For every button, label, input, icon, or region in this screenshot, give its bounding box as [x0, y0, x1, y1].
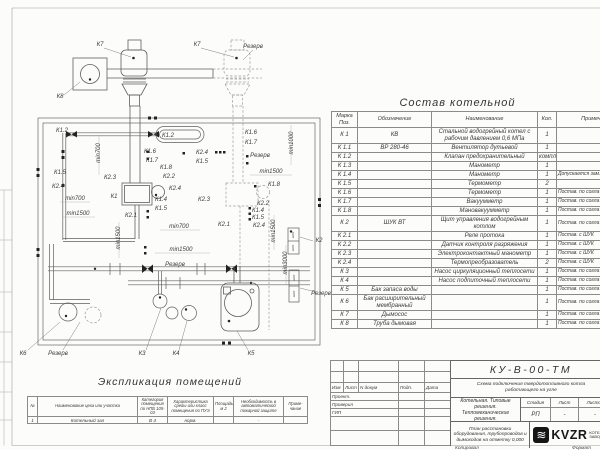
sostav-table-title: Состав котельной — [350, 97, 565, 109]
table-cell — [358, 232, 432, 241]
table-cell: К 7 — [332, 311, 358, 320]
plan-label: min700 — [169, 224, 189, 230]
table-cell: 1 — [538, 144, 557, 153]
copied-label: Копировал — [455, 446, 479, 450]
table-cell: Манометр — [432, 171, 538, 180]
signature-cell — [399, 393, 425, 401]
sostav-table-body: К 1КВСтальной водогрейный котел с рабочи… — [332, 128, 600, 329]
table-cell: Щит управления водогрейным котлом — [432, 216, 538, 232]
signature-cell: Лист — [344, 383, 359, 393]
plan-label: min700 — [65, 196, 85, 202]
table-cell: Постав. по согла — [557, 189, 600, 198]
table-row: К 3Насос циркуляционный теплосети1Постав… — [332, 268, 600, 277]
table-cell: К 1 — [332, 128, 358, 144]
signature-cell — [344, 372, 359, 383]
plan-label: min700 — [96, 143, 102, 163]
plan-label: Резерв — [250, 153, 270, 159]
drawing-sheet: К7К7РезервК8К1.2min700К1.2К1.6К1.7К2.4К1… — [0, 0, 600, 450]
table-cell: Допускается зам. поз. К 2.3 — [557, 171, 600, 180]
plan-label: К1.6 — [144, 149, 156, 155]
table-row: К 2ШУК ВТЩит управления водогрейным котл… — [332, 216, 600, 232]
table-cell: 1 — [538, 241, 557, 250]
table-row: К 1КВСтальной водогрейный котел с рабочи… — [332, 128, 600, 144]
table-cell: Датчик контроля разряжения — [432, 241, 538, 250]
plan-label: К1.5 — [54, 170, 66, 176]
signature-cell — [359, 361, 399, 372]
plan-label: К2.4 — [52, 184, 64, 190]
plan-label: К2.4 — [196, 150, 208, 156]
signature-cell — [344, 361, 359, 372]
table-row: К 1.7Вакуумметр1Постав. по согла — [332, 198, 600, 207]
table-cell — [358, 207, 432, 216]
table-cell: К 3 — [332, 268, 358, 277]
smoke-exhauster-k7 — [121, 50, 147, 76]
table-cell: 1 — [538, 128, 557, 144]
plan-label: К1 — [111, 194, 118, 200]
table-cell — [358, 171, 432, 180]
format-label: Формат — [572, 446, 591, 450]
table-cell: Мановакуумметр — [432, 207, 538, 216]
plan-label: К2.2 — [257, 201, 269, 207]
kvzr-logo-icon: ≋ — [533, 427, 549, 443]
table-cell: Электроконтактный манометр — [432, 250, 538, 259]
column-header: Наименование — [432, 112, 538, 128]
tank-k5 — [221, 266, 259, 331]
plan-label: К2 — [316, 238, 323, 244]
table-cell — [358, 259, 432, 268]
table-row: К 2.4Термопреобразователь2Постав. с ШУК — [332, 259, 600, 268]
plan-label: К1.7 — [146, 158, 158, 164]
plan-label: К1.7 — [245, 140, 257, 146]
sheet-title: План расстановки оборудования, трубопров… — [451, 422, 530, 448]
signature-cell — [399, 431, 425, 446]
table-row: К 1.6Термометр1Постав. по согла — [332, 189, 600, 198]
signature-row — [331, 431, 451, 446]
table-cell: Постав. с ШУК — [557, 250, 600, 259]
table-cell: 1 — [538, 198, 557, 207]
table-cell: Постав. по согла — [557, 207, 600, 216]
plan-label: ШУК — [291, 275, 297, 281]
plan-label: min1500 — [116, 226, 122, 249]
table-cell: 2 — [538, 180, 557, 189]
sostav-table: Марка Поз.ОбозначениеНаименованиеКол.При… — [331, 111, 600, 329]
titleblock-signature-body: ИзмЛистN докумПодп.ДатаПроект.ПроверилГИ… — [331, 361, 451, 446]
table-row: К 1.2Клапан предохранительныйкомпл. — [332, 153, 600, 162]
plan-label: min1500 — [169, 247, 192, 253]
explication-title: Экспликация помещений — [80, 376, 260, 388]
plan-label: ШУК — [290, 245, 296, 251]
signature-cell — [399, 401, 425, 409]
plan-label: К7 — [194, 42, 201, 48]
signature-cell: Изм — [331, 383, 344, 393]
table-cell: К 2.1 — [332, 232, 358, 241]
signature-cell — [399, 372, 425, 383]
stage-value-stadia: РП — [521, 408, 551, 421]
plan-label: Резерв — [311, 291, 331, 297]
table-cell: Насос подпиточный теплосети — [432, 277, 538, 286]
table-cell: К 2 — [332, 216, 358, 232]
table-cell — [214, 417, 234, 424]
table-cell: Клапан предохранительный — [432, 153, 538, 162]
table-cell: Насос циркуляционный теплосети — [432, 268, 538, 277]
table-cell: Постав. с ШУК — [557, 241, 600, 250]
kvzr-logo-caption: КОТЕЛЬНЫ ЗАВОД Р — [589, 431, 600, 440]
column-header: Наименование цеха или участка — [38, 397, 138, 417]
table-cell: 1 — [538, 250, 557, 259]
table-cell — [432, 295, 538, 311]
signature-cell — [331, 372, 344, 383]
leader-lines — [28, 308, 248, 350]
plan-label: К2.1 — [125, 213, 137, 219]
table-row: К 6Бак расширительный мембранный1Постав.… — [332, 295, 600, 311]
table-cell: Постав. по согла — [557, 320, 600, 329]
signature-cell — [425, 401, 451, 409]
table-row: К 8Труба дымовая1Постав. по согла — [332, 320, 600, 329]
table-row: К 2.2Датчик контроля разряжения1Постав. … — [332, 241, 600, 250]
plan-label: К4 — [173, 351, 180, 357]
plan-label: min1500 — [66, 211, 89, 217]
table-cell: Труба дымовая — [358, 320, 432, 329]
table-cell — [358, 162, 432, 171]
table-cell: В 4 — [138, 417, 168, 424]
column-header: Категория помещения по НПБ 105-03 — [138, 397, 168, 417]
stage-values: РП - - — [521, 408, 600, 421]
table-cell: - — [234, 417, 284, 424]
table-cell: Стальной водогрейный котел с рабочим дав… — [432, 128, 538, 144]
table-cell — [557, 144, 600, 153]
column-header: Необходимость в автоматической пожарной … — [234, 397, 284, 417]
table-cell — [432, 320, 538, 329]
signature-cell: Проверил — [331, 401, 399, 409]
document-subtitle: Схема подключения твердотопливного котла… — [451, 379, 600, 398]
table-cell: КВ — [358, 128, 432, 144]
table-cell: Вентилятор дутьевой — [432, 144, 538, 153]
table-cell: Постав. по согла — [557, 198, 600, 207]
table-cell — [432, 286, 538, 295]
table-cell: Термометр — [432, 180, 538, 189]
table-row: К 5Бак запаса воды1Постав. по согла — [332, 286, 600, 295]
table-cell: Бак запаса воды — [358, 286, 432, 295]
stage-value-listov: - — [579, 408, 600, 421]
signature-cell — [331, 431, 399, 446]
table-cell — [358, 268, 432, 277]
table-cell: К 5 — [332, 286, 358, 295]
plan-label: ШУК — [291, 291, 297, 297]
table-cell: компл. — [538, 153, 557, 162]
signature-row: Проект. — [331, 393, 451, 401]
project-object: Котельная. Типовые решения. Тепломеханич… — [451, 398, 521, 421]
column-header: Характеристика среды или класс помещения… — [168, 397, 214, 417]
explication-table-head: №Наименование цеха или участкаКатегория … — [28, 397, 308, 417]
column-header: Площадь, м 2 — [214, 397, 234, 417]
signature-row: ИзмЛистN докумПодп.Дата — [331, 383, 451, 393]
table-cell: 1 — [538, 295, 557, 311]
titleblock-signature-grid: ИзмЛистN докумПодп.ДатаПроект.ПроверилГИ… — [330, 360, 451, 446]
plan-label: min3000 — [283, 251, 289, 274]
table-cell: Котельный зал — [38, 417, 138, 424]
table-cell: К 4 — [332, 277, 358, 286]
chimney-base-k8 — [73, 58, 107, 90]
plan-label: К2.4 — [169, 186, 181, 192]
plan-label: К8 — [57, 94, 64, 100]
table-cell: Постав. с ШУК — [557, 259, 600, 268]
plan-label: К6 — [20, 351, 27, 357]
signature-cell — [331, 417, 399, 431]
table-cell: Манометр — [432, 162, 538, 171]
table-cell: К 1.5 — [332, 180, 358, 189]
plan-label: К1.5 — [155, 206, 167, 212]
plan-label: К1.6 — [245, 130, 257, 136]
chimney-assembly-reserve — [201, 40, 262, 183]
signature-cell: Дата — [425, 383, 451, 393]
column-header: Обозначение — [358, 112, 432, 128]
table-row: К 1.4Манометр1Допускается зам. поз. К 2.… — [332, 171, 600, 180]
table-cell: К 6 — [332, 295, 358, 311]
table-cell: ШУК ВТ — [358, 216, 432, 232]
table-cell: Постав. с ШУК — [557, 232, 600, 241]
table-cell: Постав. по согла — [557, 216, 600, 232]
plan-label: К2.1 — [218, 222, 230, 228]
table-cell — [358, 277, 432, 286]
plan-label: К2.3 — [198, 197, 210, 203]
table-cell — [358, 180, 432, 189]
plan-label: Резерв — [48, 351, 68, 357]
table-cell: К 1.6 — [332, 189, 358, 198]
column-header: Примечание — [557, 112, 600, 128]
column-header: Кол. — [538, 112, 557, 128]
table-row: К 2.3Электроконтактный манометр1Постав. … — [332, 250, 600, 259]
signature-row: Проверил — [331, 401, 451, 409]
signature-cell: Проект. — [331, 393, 399, 401]
table-cell: Постав. по согла — [557, 277, 600, 286]
wall-ticks — [37, 117, 322, 345]
table-cell — [358, 250, 432, 259]
plan-label: min1000 — [289, 131, 295, 154]
table-cell — [358, 198, 432, 207]
plan-label: К1.2 — [162, 133, 174, 139]
table-row: К 1.8Мановакуумметр1Постав. по согла — [332, 207, 600, 216]
signature-cell — [399, 361, 425, 372]
stage-header-stadia: Стадия — [521, 398, 551, 407]
table-cell: 1 — [538, 268, 557, 277]
signature-cell — [425, 393, 451, 401]
column-header: Приме- чание — [284, 397, 308, 417]
table-cell — [557, 180, 600, 189]
plan-label: К2.4 — [253, 223, 265, 229]
signature-row — [331, 417, 451, 431]
plan-label: К1.4 — [252, 208, 264, 214]
table-cell: К 1.4 — [332, 171, 358, 180]
titleblock-main: КУ-В-00-ТМ Схема подключения твердотопли… — [450, 360, 600, 446]
plan-label: К2.3 — [104, 175, 116, 181]
signature-cell — [425, 417, 451, 431]
table-cell — [358, 241, 432, 250]
plan-label: К1.8 — [268, 182, 280, 188]
table-row: К 1.1ВР 280-46Вентилятор дутьевой1 — [332, 144, 600, 153]
table-row: 1Котельный залВ 4норм.- — [28, 417, 308, 424]
plan-label: К1.8 — [160, 165, 172, 171]
signature-cell — [425, 431, 451, 446]
signature-cell — [425, 361, 451, 372]
table-row: К 2.1Реле протока1Постав. с ШУК — [332, 232, 600, 241]
table-cell: 1 — [538, 232, 557, 241]
signature-row — [331, 361, 451, 372]
table-row: К 1.3Манометр1 — [332, 162, 600, 171]
table-cell: 1 — [538, 320, 557, 329]
signature-cell: N докум — [359, 383, 399, 393]
table-cell: 1 — [538, 162, 557, 171]
plan-label: К2.2 — [163, 174, 175, 180]
plan-label: К3 — [139, 351, 146, 357]
company-logo: ≋ KVZR КОТЕЛЬНЫ ЗАВОД Р — [530, 422, 600, 448]
table-cell: 1 — [28, 417, 38, 424]
table-cell: К 2.2 — [332, 241, 358, 250]
signature-cell — [425, 372, 451, 383]
chimney-assembly — [64, 40, 213, 183]
table-cell: Термопреобразователь — [432, 259, 538, 268]
explication-table: №Наименование цеха или участкаКатегория … — [27, 396, 308, 424]
plan-label: К1.2 — [56, 128, 68, 134]
table-cell: Постав. по согла — [557, 311, 600, 320]
table-cell: 1 — [538, 277, 557, 286]
signature-cell: Подп. — [399, 383, 425, 393]
plan-label: min1500 — [259, 169, 282, 175]
table-cell: 1 — [538, 207, 557, 216]
signature-cell — [359, 372, 399, 383]
table-cell: ВР 280-46 — [358, 144, 432, 153]
table-cell — [358, 189, 432, 198]
plan-label: Резерв — [243, 44, 263, 50]
table-cell — [358, 153, 432, 162]
plan-label: Резерв — [165, 262, 185, 268]
table-cell: Вакуумметр — [432, 198, 538, 207]
signature-cell: ГИП — [331, 409, 399, 417]
table-cell: норм. — [168, 417, 214, 424]
kvzr-caption-line2: ЗАВОД Р — [589, 435, 600, 439]
signature-cell — [331, 361, 344, 372]
table-cell — [557, 162, 600, 171]
signature-row — [331, 372, 451, 383]
plan-label: К7 — [97, 42, 104, 48]
table-cell: 1 — [538, 286, 557, 295]
signature-row: ГИП — [331, 409, 451, 417]
table-cell: 1 — [538, 216, 557, 232]
plan-label: К1.5 — [196, 159, 208, 165]
table-cell: К 1.7 — [332, 198, 358, 207]
table-cell: К 1.3 — [332, 162, 358, 171]
room-walls — [37, 117, 322, 346]
plan-label: К1.5 — [252, 215, 264, 221]
table-cell: Реле протока — [432, 232, 538, 241]
table-cell: К 1.8 — [332, 207, 358, 216]
table-row: К 7Дымосос1Постав. по согла — [332, 311, 600, 320]
table-cell: К 2.3 — [332, 250, 358, 259]
table-cell: 1 — [538, 311, 557, 320]
table-cell — [557, 128, 600, 144]
document-number: КУ-В-00-ТМ — [451, 361, 600, 379]
table-cell: Дымосос — [358, 311, 432, 320]
signature-cell — [425, 409, 451, 417]
table-cell: Термометр — [432, 189, 538, 198]
sostav-table-head: Марка Поз.ОбозначениеНаименованиеКол.При… — [332, 112, 600, 128]
table-row: К 4Насос подпиточный теплосети1Постав. п… — [332, 277, 600, 286]
table-row: К 1.5Термометр2 — [332, 180, 600, 189]
table-cell: Постав. по согла — [557, 286, 600, 295]
table-cell: 1 — [538, 171, 557, 180]
table-cell: Бак расширительный мембранный — [358, 295, 432, 311]
table-cell: 1 — [538, 189, 557, 198]
table-cell: 2 — [538, 259, 557, 268]
column-header: № — [28, 397, 38, 417]
kvzr-logo-word: KVZR — [551, 428, 587, 442]
table-cell: Постав. по согла — [557, 295, 600, 311]
stage-block: Стадия Лист Листов РП - - — [521, 398, 600, 421]
table-cell — [557, 153, 600, 162]
signature-cell — [399, 409, 425, 417]
table-cell: К 2.4 — [332, 259, 358, 268]
explication-table-body: 1Котельный залВ 4норм.- — [28, 417, 308, 424]
plan-label: ШУК — [290, 232, 296, 238]
table-cell — [432, 311, 538, 320]
table-cell — [284, 417, 308, 424]
table-cell: К 8 — [332, 320, 358, 329]
table-cell: К 1.1 — [332, 144, 358, 153]
table-cell: Постав. по согла — [557, 268, 600, 277]
signature-cell — [399, 417, 425, 431]
plan-label: К1.4 — [155, 197, 167, 203]
stage-headers: Стадия Лист Листов — [521, 398, 600, 408]
stage-value-list: - — [551, 408, 579, 421]
plan-label: К5 — [248, 351, 255, 357]
table-cell: К 1.2 — [332, 153, 358, 162]
stage-header-listov: Листов — [579, 398, 600, 407]
column-header: Марка Поз. — [332, 112, 358, 128]
stage-header-list: Лист — [551, 398, 579, 407]
plan-label: min1500 — [271, 219, 277, 242]
